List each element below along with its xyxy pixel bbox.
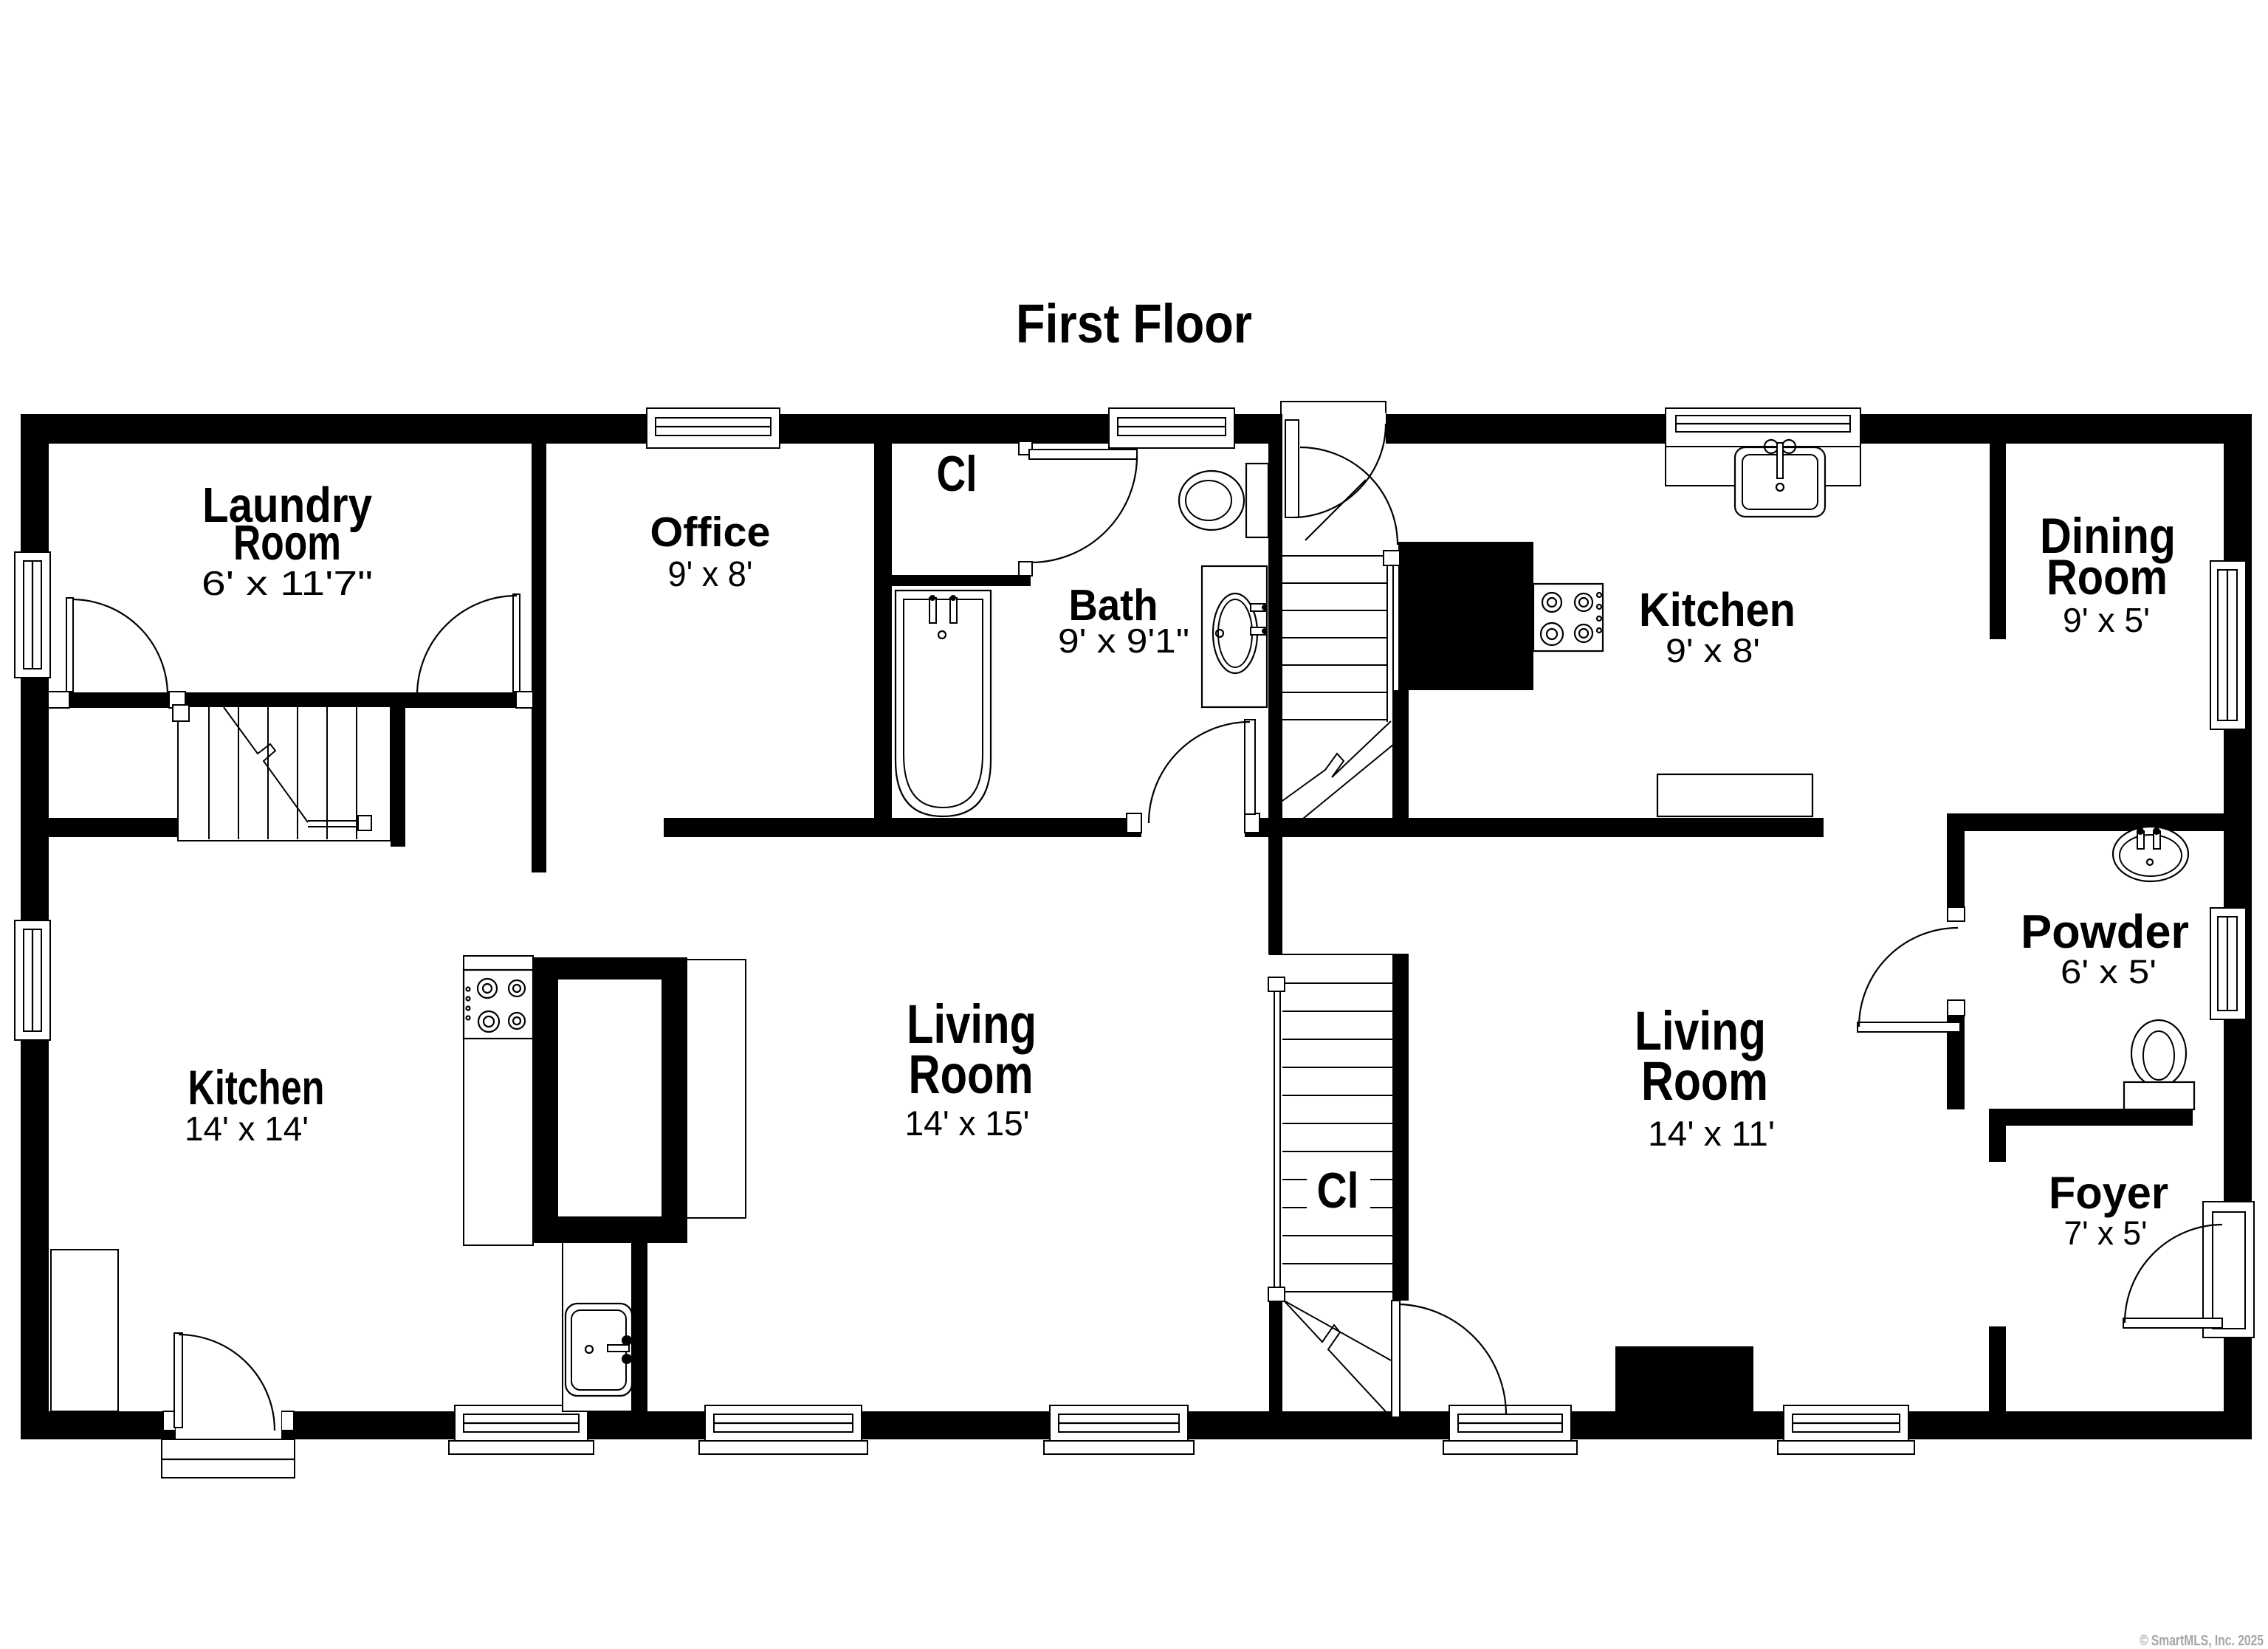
svg-text:Cl: Cl [1317, 1163, 1359, 1219]
svg-text:Foyer: Foyer [2049, 1168, 2168, 1218]
svg-text:9' x 8': 9' x 8' [1666, 632, 1760, 669]
svg-text:9' x 8': 9' x 8' [668, 555, 753, 594]
svg-text:Room: Room [233, 515, 341, 571]
svg-text:6' x 11'7": 6' x 11'7" [202, 564, 373, 602]
svg-text:Room: Room [2047, 549, 2168, 605]
svg-text:Kitchen: Kitchen [1639, 583, 1795, 636]
svg-text:© SmartMLS, Inc. 2025: © SmartMLS, Inc. 2025 [2140, 1633, 2264, 1649]
svg-text:Room: Room [1641, 1050, 1768, 1112]
svg-text:Office: Office [650, 509, 771, 556]
svg-text:9' x 9'1": 9' x 9'1" [1058, 622, 1189, 660]
svg-text:Powder: Powder [2021, 905, 2189, 958]
svg-text:14' x 14': 14' x 14' [185, 1109, 309, 1148]
svg-text:Room: Room [909, 1044, 1034, 1105]
svg-text:14' x 11': 14' x 11' [1648, 1114, 1775, 1153]
svg-text:7' x 5': 7' x 5' [2064, 1214, 2148, 1252]
svg-text:Kitchen: Kitchen [188, 1060, 325, 1115]
svg-text:6' x 5': 6' x 5' [2061, 953, 2157, 991]
svg-text:9' x 5': 9' x 5' [2063, 601, 2150, 639]
svg-text:First Floor: First Floor [1016, 293, 1252, 354]
svg-text:Cl: Cl [937, 446, 977, 502]
svg-text:14' x 15': 14' x 15' [905, 1104, 1030, 1143]
